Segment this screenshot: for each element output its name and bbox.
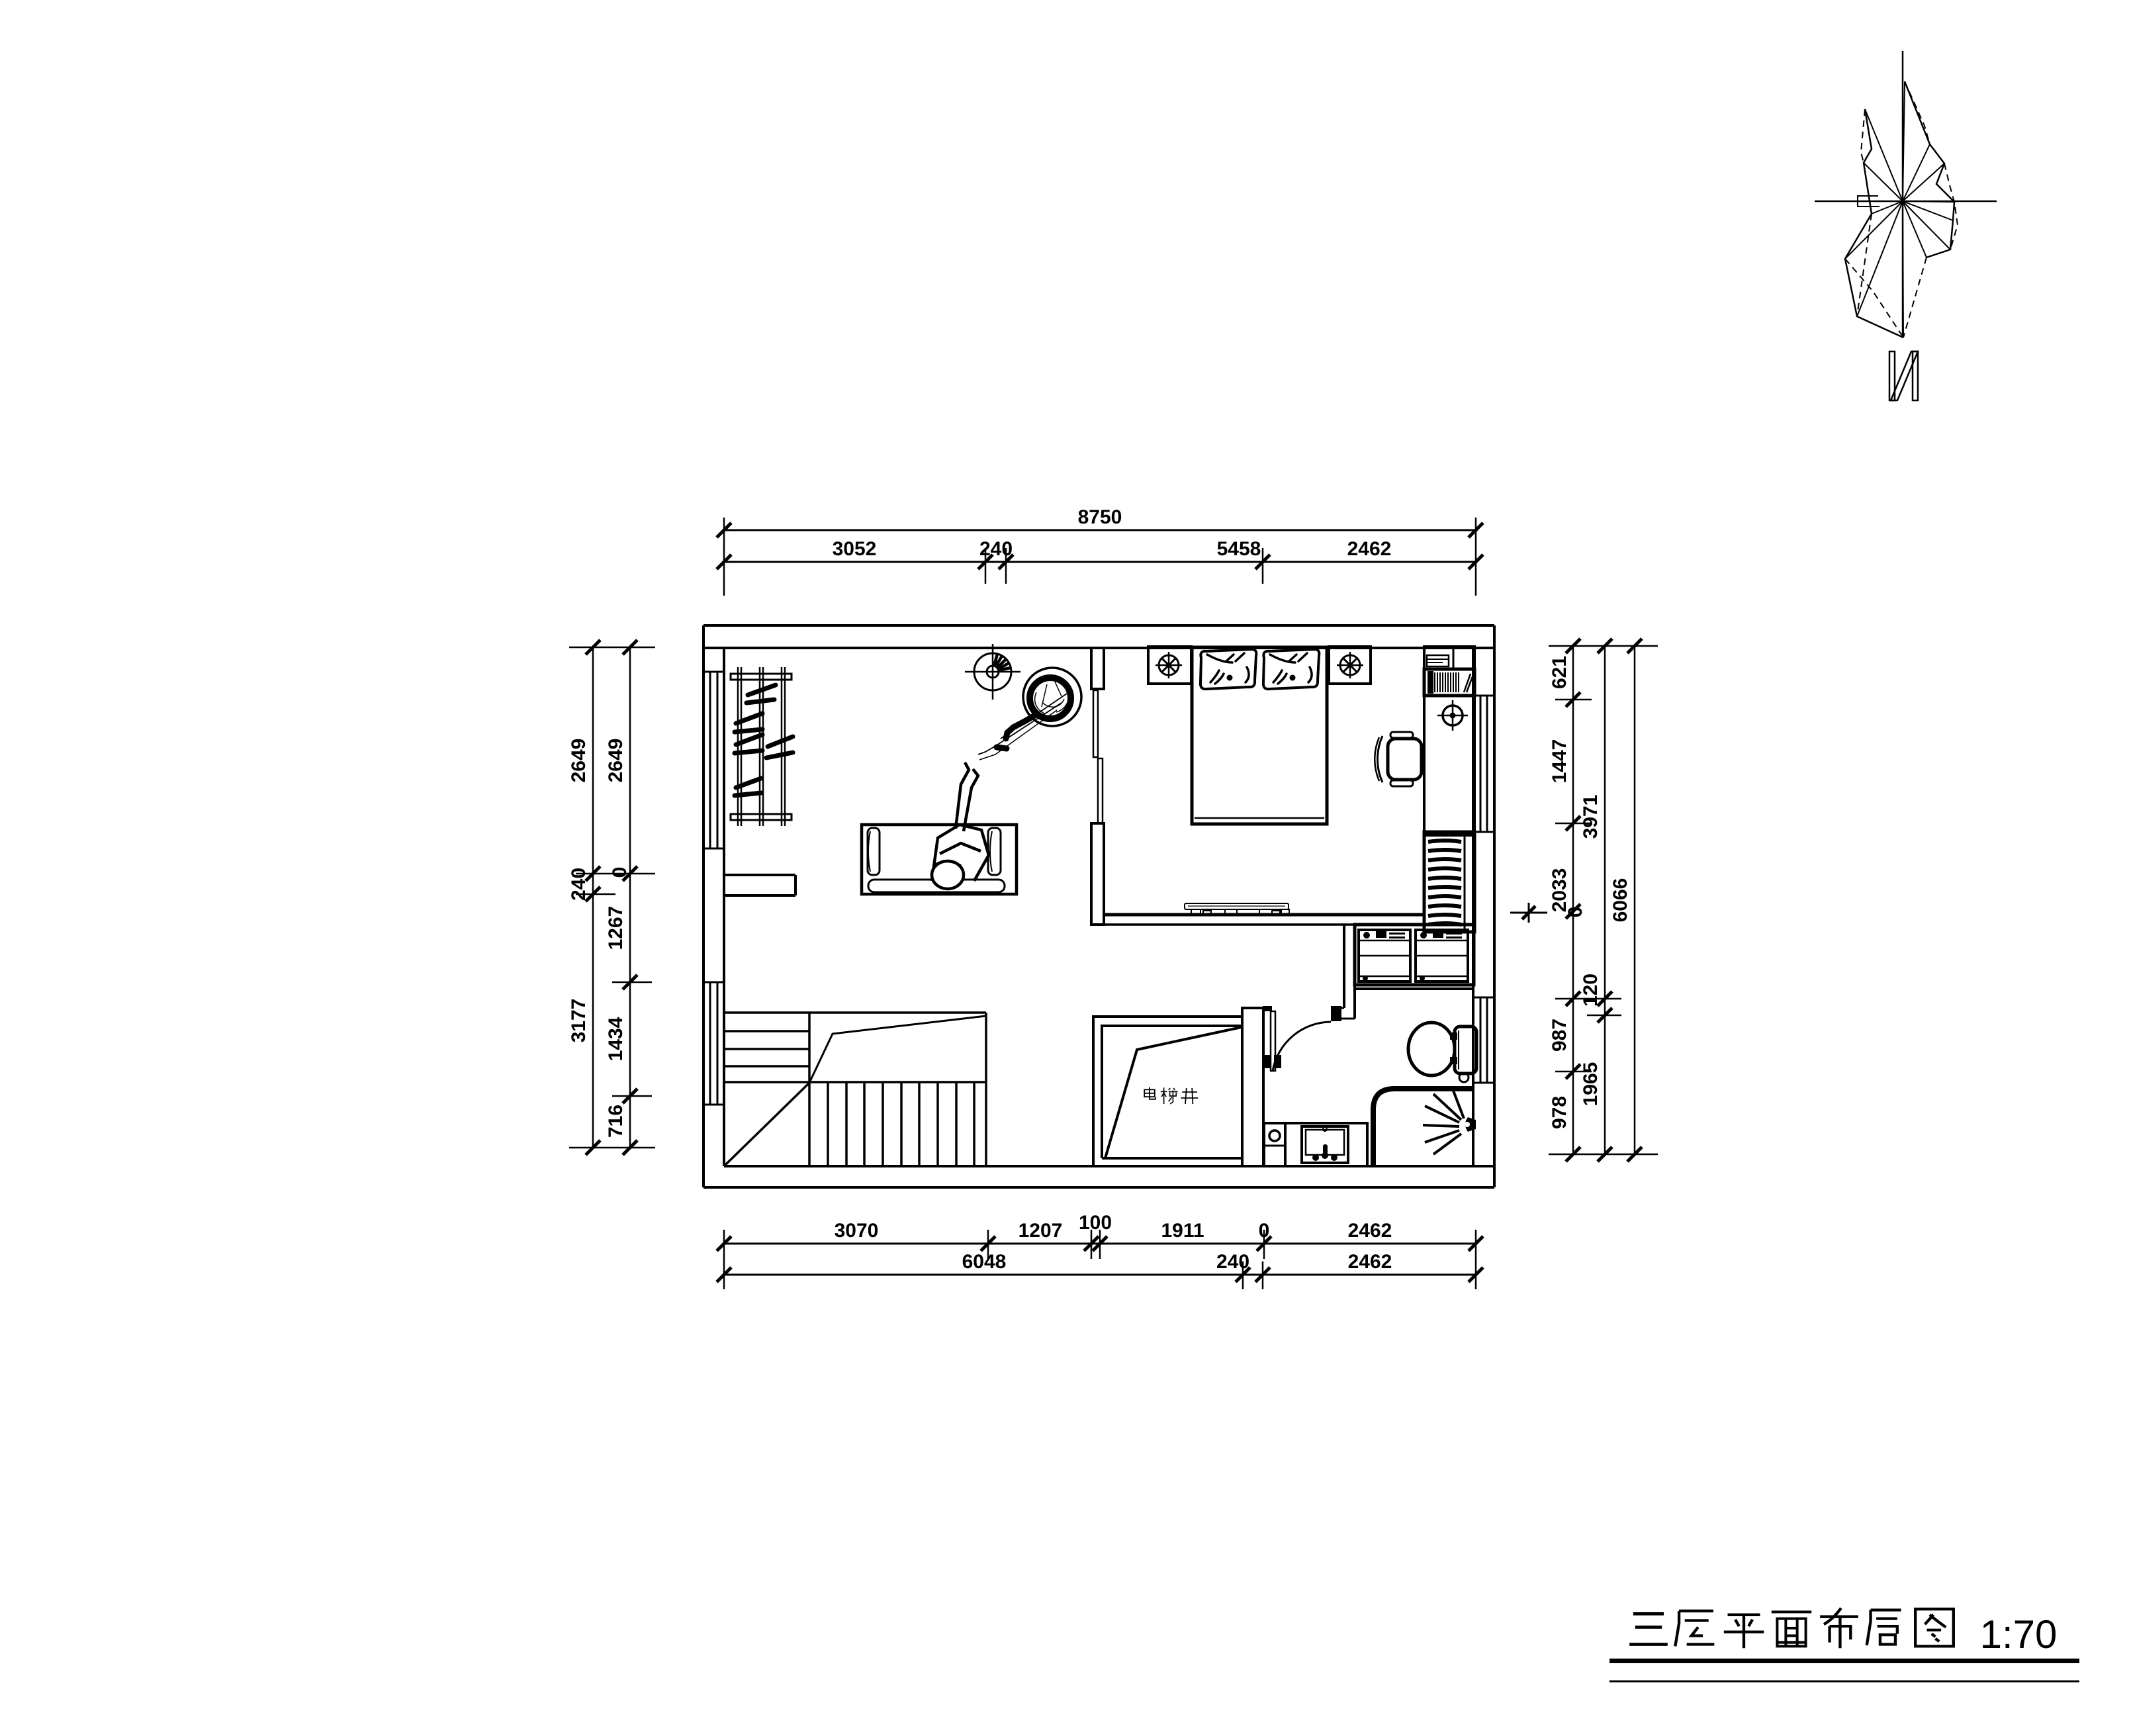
svg-text:5458: 5458 — [1217, 538, 1261, 560]
svg-text:240: 240 — [568, 868, 590, 901]
svg-text:1911: 1911 — [1161, 1220, 1204, 1242]
svg-text:240: 240 — [979, 538, 1013, 560]
svg-text:3070: 3070 — [835, 1220, 879, 1242]
svg-text:3052: 3052 — [833, 538, 877, 560]
svg-text:2462: 2462 — [1347, 538, 1392, 560]
svg-text:1965: 1965 — [1580, 1062, 1602, 1107]
svg-text:2462: 2462 — [1348, 1251, 1392, 1273]
svg-text:716: 716 — [605, 1105, 627, 1138]
svg-text:6066: 6066 — [1609, 878, 1631, 923]
svg-text:2033: 2033 — [1549, 868, 1570, 913]
svg-text:2649: 2649 — [605, 739, 627, 783]
svg-text:978: 978 — [1549, 1096, 1570, 1129]
svg-text:1434: 1434 — [605, 1017, 627, 1061]
svg-text:6048: 6048 — [962, 1251, 1007, 1273]
svg-text:621: 621 — [1549, 656, 1570, 689]
svg-text:240: 240 — [1216, 1251, 1249, 1273]
svg-text:0: 0 — [609, 867, 631, 878]
svg-text:3177: 3177 — [568, 999, 590, 1043]
svg-text:0: 0 — [1564, 907, 1586, 918]
svg-text:1267: 1267 — [605, 906, 627, 950]
svg-text:3971: 3971 — [1580, 795, 1602, 839]
svg-text:120: 120 — [1580, 974, 1602, 1007]
svg-text:1447: 1447 — [1549, 739, 1570, 784]
svg-text:2462: 2462 — [1348, 1220, 1392, 1242]
svg-text:100: 100 — [1079, 1212, 1112, 1234]
svg-text:1:70: 1:70 — [1980, 1612, 2058, 1657]
svg-text:8750: 8750 — [1078, 506, 1122, 528]
svg-text:0: 0 — [1259, 1220, 1270, 1242]
svg-text:987: 987 — [1549, 1019, 1570, 1052]
svg-text:2649: 2649 — [568, 739, 590, 783]
svg-text:1207: 1207 — [1019, 1220, 1063, 1242]
